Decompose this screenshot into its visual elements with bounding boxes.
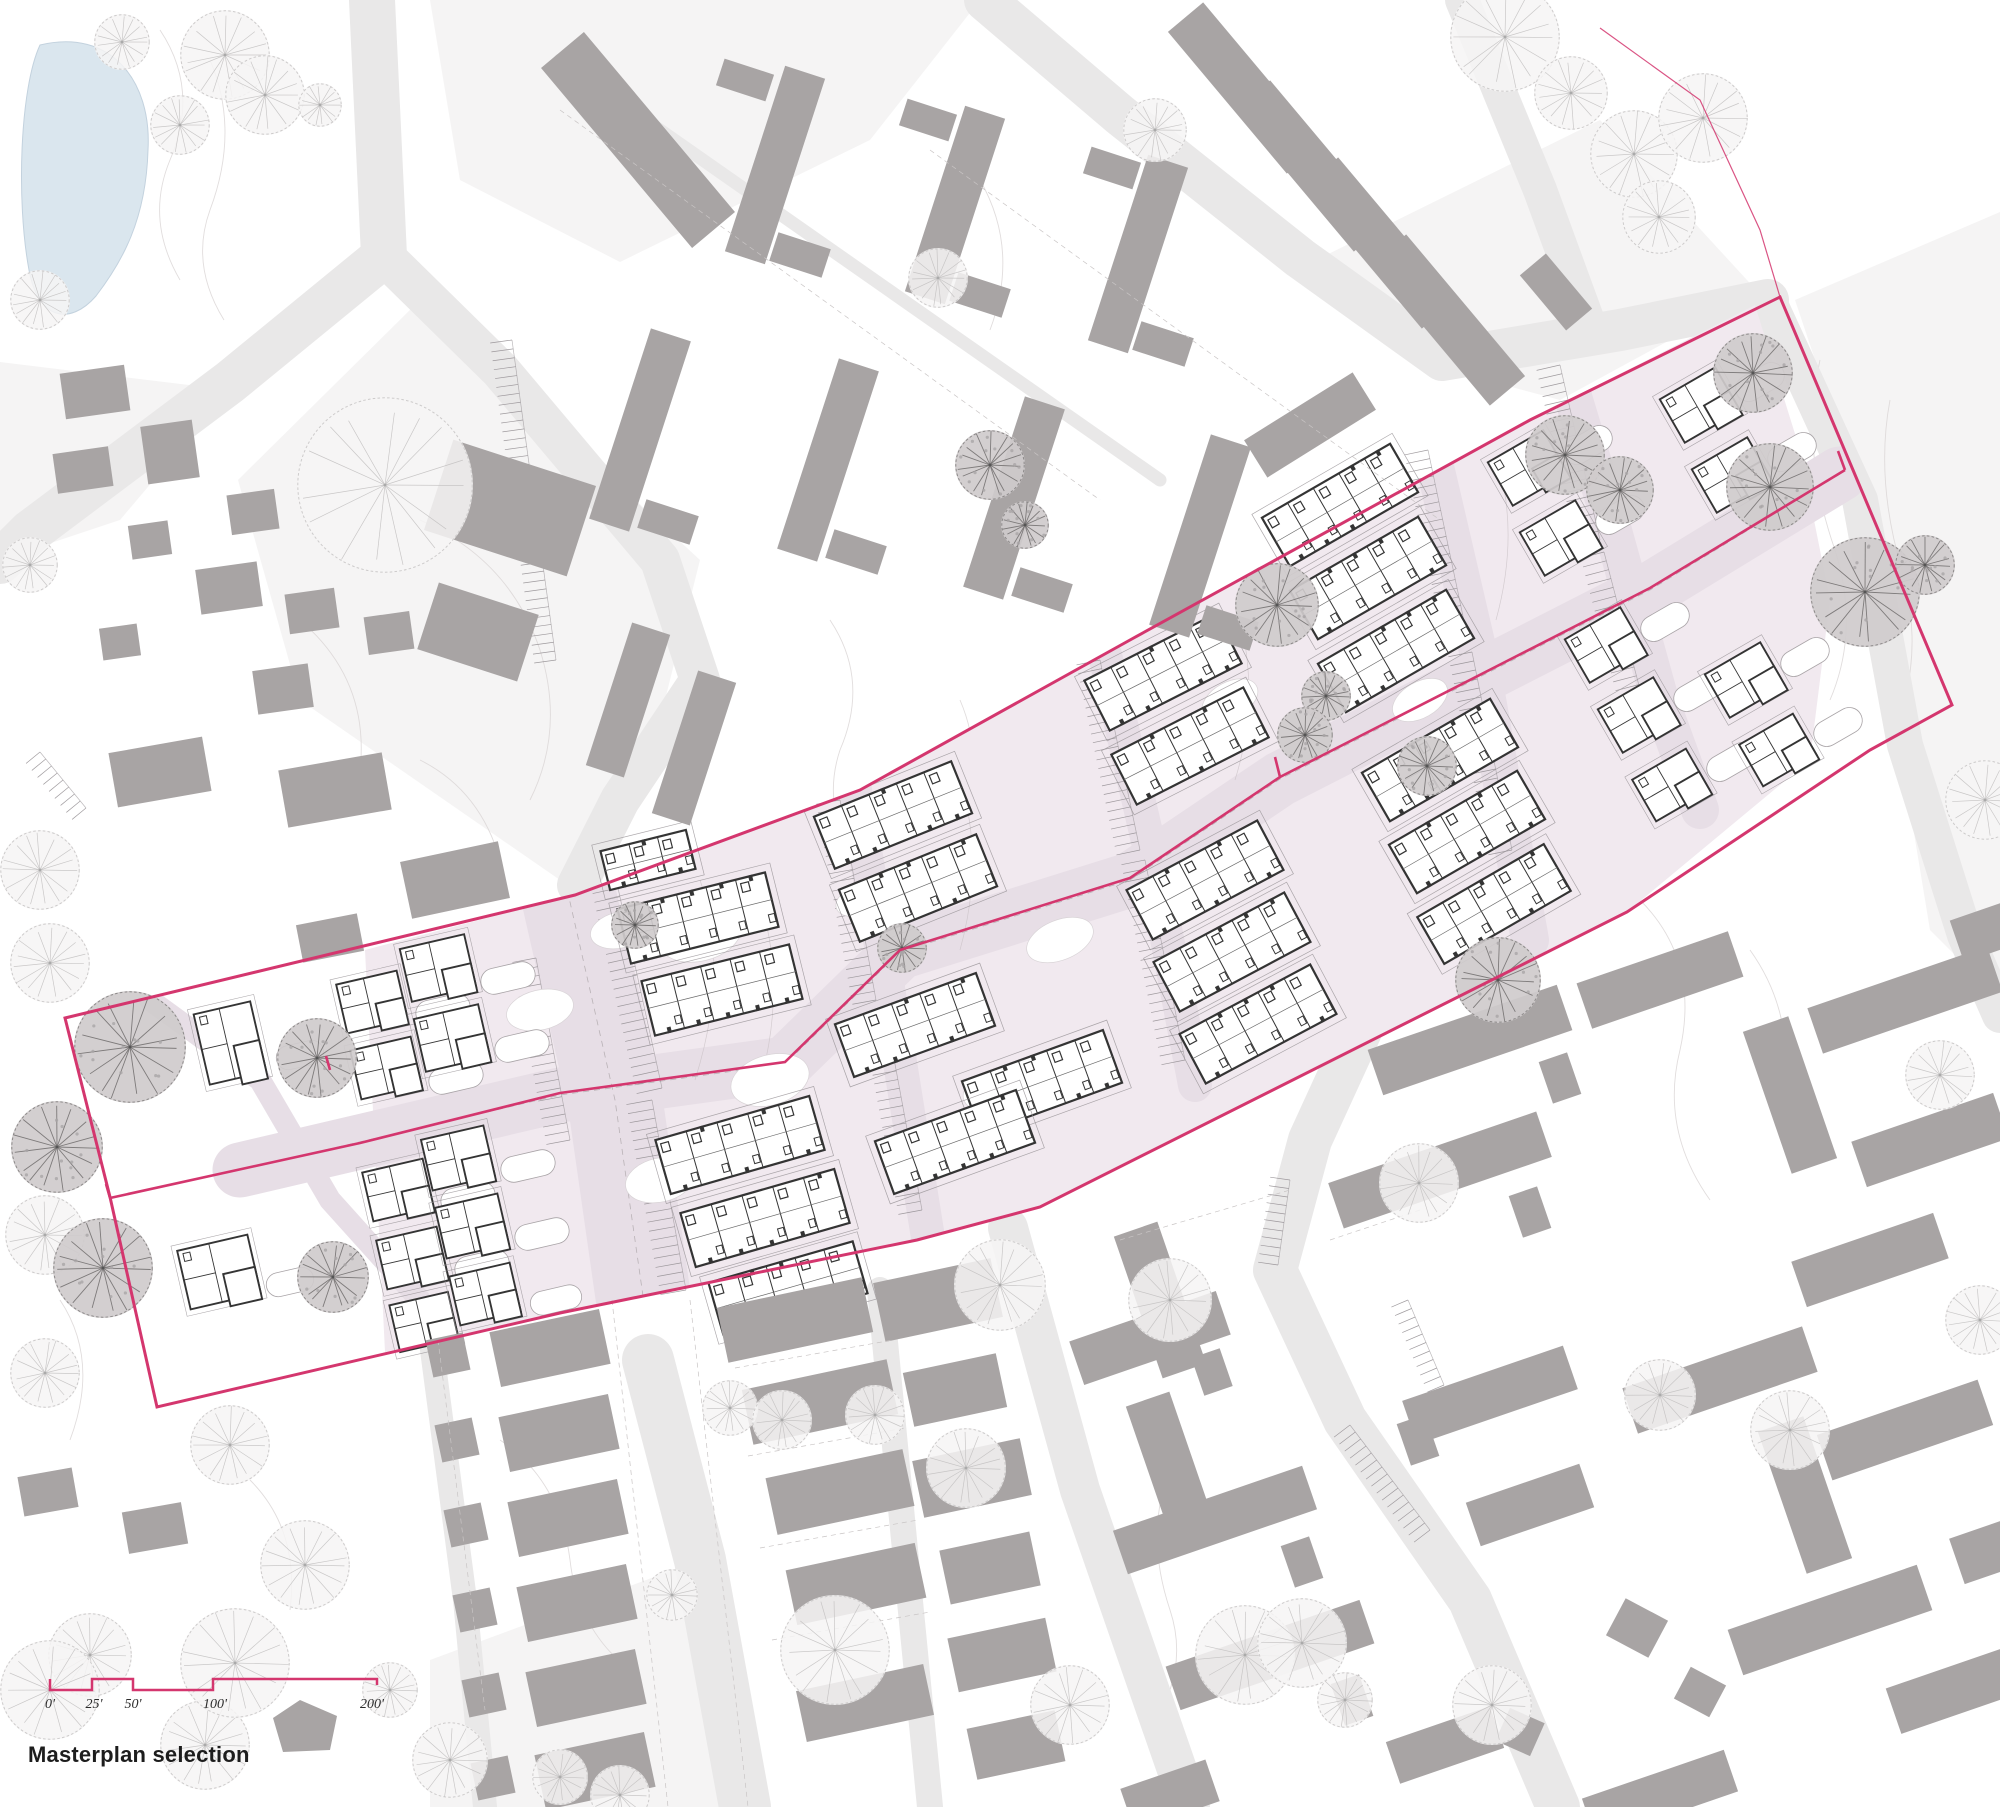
building-footprint — [1817, 1380, 1993, 1481]
tree-dark-glyph — [53, 1218, 153, 1318]
building-footprint — [1083, 147, 1141, 190]
building-footprint — [452, 1587, 497, 1632]
building-footprint — [1466, 1464, 1594, 1547]
parking-comb — [1391, 1300, 1444, 1392]
drawing-caption: Masterplan selection — [28, 1742, 250, 1768]
building-footprint — [1807, 946, 2000, 1053]
building-footprint — [825, 529, 887, 575]
tree-light-glyph — [954, 1239, 1046, 1331]
tree-dark-glyph — [1397, 736, 1457, 796]
building-footprint — [60, 365, 131, 420]
building-footprint — [1851, 1093, 2000, 1187]
building-footprint — [434, 1417, 479, 1462]
tree-light-glyph — [908, 248, 968, 308]
building-footprint — [1886, 1646, 2000, 1734]
building-footprint — [1674, 1667, 1726, 1718]
parking-comb — [26, 752, 86, 819]
tree-light-glyph — [1030, 1665, 1110, 1745]
tree-light-glyph — [2, 537, 58, 593]
tree-light-glyph — [1750, 1390, 1830, 1470]
tree-light-glyph — [1317, 1672, 1373, 1728]
tree-light-glyph — [845, 1385, 905, 1445]
tree-light-glyph — [297, 397, 473, 573]
tree-light-glyph — [1622, 180, 1696, 254]
building-footprint — [99, 624, 141, 661]
tree-light-glyph — [10, 1338, 80, 1408]
tree-light-glyph — [94, 14, 150, 70]
building-footprint — [589, 328, 691, 531]
building-footprint — [1011, 567, 1073, 613]
building-footprint — [1582, 1750, 1738, 1807]
tree-light-glyph — [10, 923, 90, 1003]
tree-dark-glyph — [1001, 501, 1049, 549]
building-footprint — [1132, 321, 1194, 367]
cottage-plan — [171, 1228, 267, 1317]
building-footprint — [903, 1353, 1007, 1427]
building-footprint — [273, 1700, 337, 1752]
tree-dark-glyph — [74, 991, 186, 1103]
tree-light-glyph — [10, 270, 70, 330]
road — [372, 0, 384, 256]
building-footprint — [195, 561, 263, 614]
tree-dark-glyph — [955, 430, 1025, 500]
building-footprint — [1577, 931, 1744, 1028]
building-footprint — [1539, 1052, 1582, 1103]
tree-light-glyph — [225, 55, 305, 135]
tree-light-glyph — [926, 1428, 1006, 1508]
building-footprint — [1244, 372, 1376, 477]
tree-light-glyph — [150, 95, 210, 155]
tree-dark-glyph — [1586, 456, 1654, 524]
contour-line — [160, 30, 183, 280]
tree-dark-glyph — [297, 1241, 369, 1313]
building-footprint — [52, 446, 113, 493]
building-footprint — [507, 1479, 628, 1557]
cottage-plan — [187, 994, 272, 1092]
tree-light-glyph — [532, 1749, 588, 1805]
tree-light-glyph — [190, 1405, 270, 1485]
tree-light-glyph — [1624, 1359, 1696, 1431]
building-footprint — [17, 1468, 78, 1517]
building-footprint — [252, 663, 314, 714]
tree-light-glyph — [298, 83, 342, 127]
building-footprint — [1728, 1565, 1933, 1675]
tree-light-glyph — [752, 1390, 812, 1450]
building-footprint — [122, 1502, 188, 1554]
tree-light-glyph — [412, 1722, 488, 1798]
tree-dark-glyph — [1726, 443, 1814, 531]
tree-light-glyph — [0, 830, 80, 910]
tree-light-glyph — [180, 1608, 290, 1718]
building-footprint — [498, 1394, 619, 1472]
building-footprint — [443, 1502, 488, 1547]
building-footprint — [899, 99, 957, 142]
tree-dark-glyph — [611, 901, 659, 949]
building-footprint — [1949, 1516, 2000, 1584]
tree-light-glyph — [1452, 1665, 1532, 1745]
building-footprint — [939, 1532, 1040, 1605]
tree-light-glyph — [1379, 1143, 1459, 1223]
tree-light-glyph — [702, 1380, 758, 1436]
building-footprint — [226, 489, 279, 535]
building-footprint — [284, 588, 339, 635]
tree-light-glyph — [260, 1520, 350, 1610]
building-footprint — [140, 420, 200, 485]
building-footprint — [1606, 1598, 1668, 1658]
tree-light-glyph — [1123, 98, 1187, 162]
building-footprint — [1791, 1213, 1948, 1307]
site-plan-canvas — [0, 0, 2000, 1807]
tree-light-glyph — [1534, 56, 1608, 130]
building-footprint — [1281, 1536, 1324, 1587]
building-footprint — [400, 841, 510, 919]
masterplan-drawing: 0' 25' 50' 100' 200' Masterplan selectio… — [0, 0, 2000, 1807]
building-footprint — [128, 520, 172, 559]
building-footprint — [364, 611, 415, 655]
tree-dark-glyph — [1455, 937, 1541, 1023]
tree-light-glyph — [1905, 1040, 1975, 1110]
building-footprint — [108, 737, 211, 808]
tree-light-glyph — [646, 1569, 698, 1621]
building-footprint — [1509, 1186, 1552, 1237]
building-footprint — [1088, 155, 1188, 353]
tree-dark-glyph — [277, 1018, 357, 1098]
tree-dark-glyph — [1713, 333, 1793, 413]
building-footprint — [278, 752, 391, 827]
building-footprint — [461, 1672, 506, 1717]
tree-dark-glyph — [1895, 535, 1955, 595]
tree-light-glyph — [362, 1662, 418, 1718]
tree-light-glyph — [1128, 1258, 1212, 1342]
tree-light-glyph — [780, 1595, 890, 1705]
building-footprint — [777, 358, 879, 561]
tree-light-glyph — [1945, 1285, 2000, 1355]
driveway — [1809, 703, 1867, 752]
tree-light-glyph — [1658, 73, 1748, 163]
